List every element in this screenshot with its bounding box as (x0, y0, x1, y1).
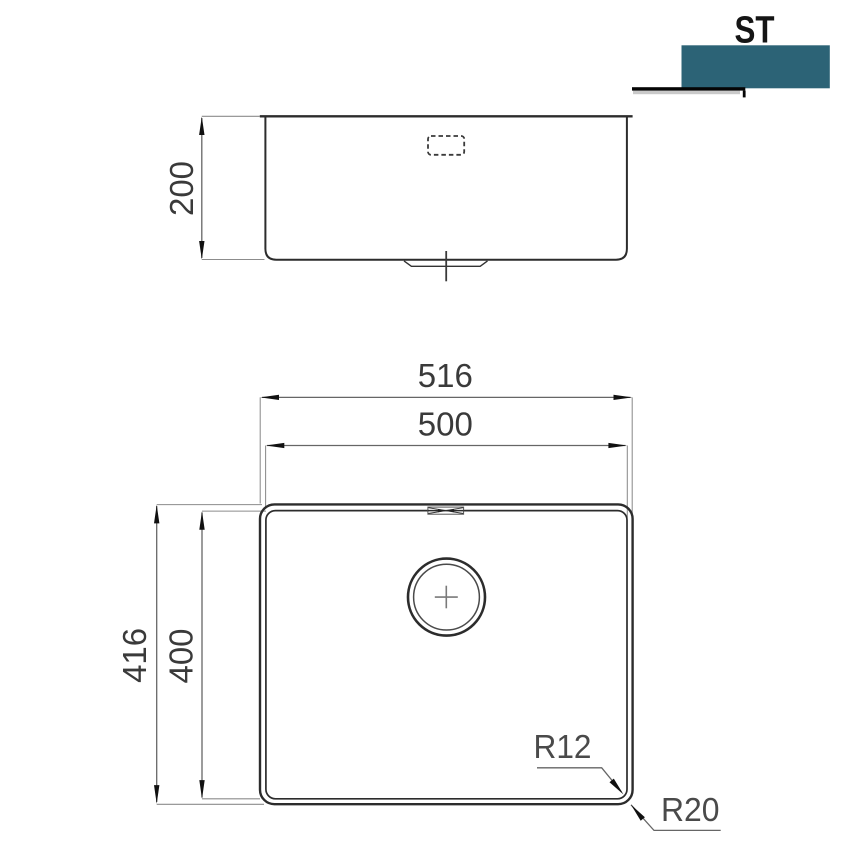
svg-text:416: 416 (116, 628, 153, 683)
svg-text:500: 500 (418, 405, 473, 442)
svg-text:200: 200 (163, 161, 200, 216)
svg-text:516: 516 (418, 357, 473, 394)
svg-text:400: 400 (162, 628, 199, 683)
svg-text:R20: R20 (661, 791, 720, 828)
svg-text:R12: R12 (534, 728, 592, 765)
